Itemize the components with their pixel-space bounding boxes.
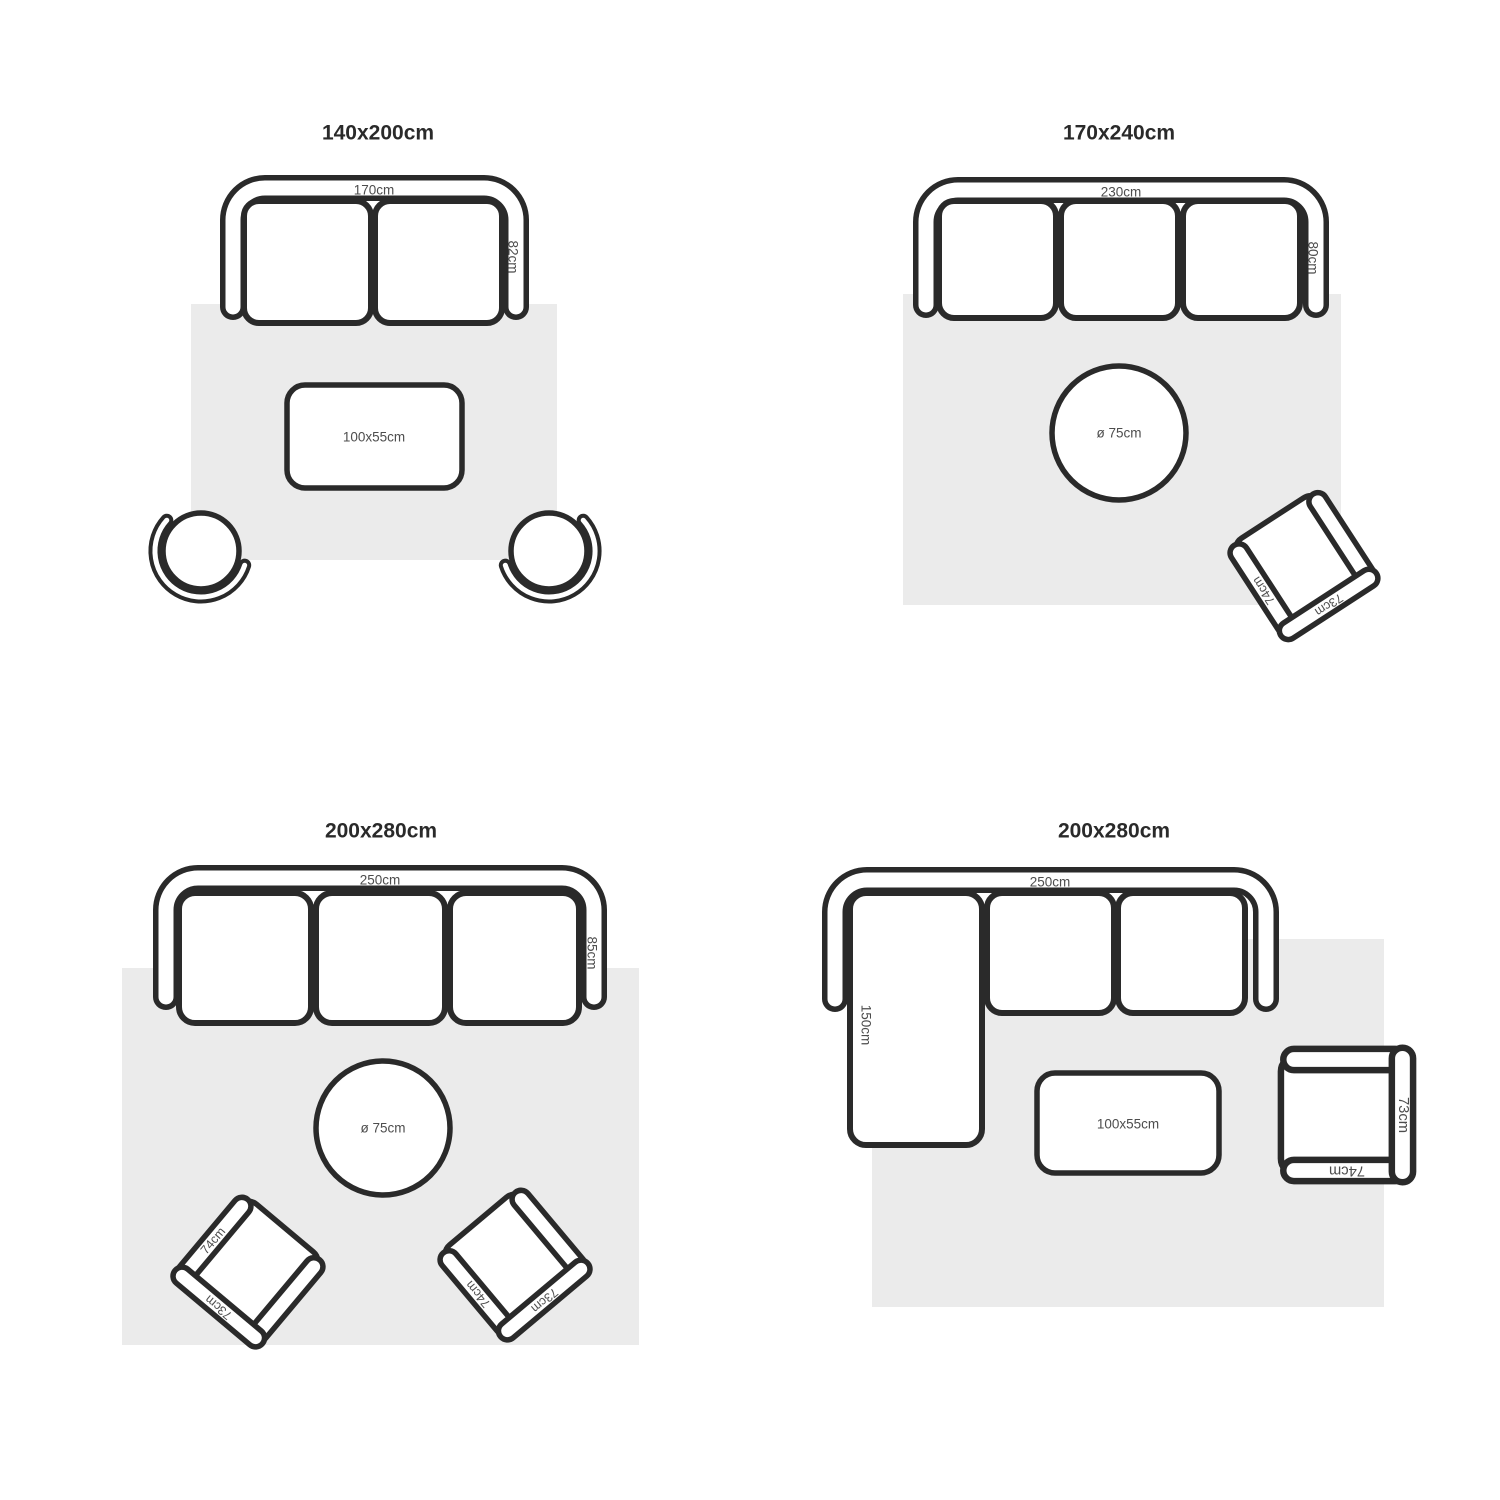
coffee-table: 100x55cm bbox=[1037, 1073, 1219, 1173]
sofa-cushion bbox=[1061, 201, 1178, 318]
tub-chair-right bbox=[505, 513, 595, 597]
sofa-cushion bbox=[987, 893, 1114, 1013]
sofa-cushion bbox=[316, 893, 445, 1023]
layout-140x200: 140x200cm 170cm 82cm 100x55cm bbox=[155, 122, 595, 598]
layout-140x200-title: 140x200cm bbox=[322, 122, 434, 145]
round-table: ø 75cm bbox=[1052, 366, 1186, 500]
sofa-depth-label: 85cm bbox=[585, 936, 600, 969]
sofa-chaise-length-label: 150cm bbox=[859, 1005, 874, 1046]
coffee-table: 100x55cm bbox=[287, 385, 462, 488]
coffee-table-label: 100x55cm bbox=[1097, 1117, 1159, 1132]
layout-200x280-b-title: 200x280cm bbox=[1058, 820, 1170, 843]
rug-size-guide-canvas: 140x200cm 170cm 82cm 100x55cm bbox=[0, 0, 1500, 1500]
sofa-cushion bbox=[1118, 893, 1245, 1013]
layout-200x280-b: 200x280cm 250cm 150cm 100x55cm 74cm 73cm bbox=[835, 820, 1413, 1308]
round-table-label: ø 75cm bbox=[1096, 426, 1141, 441]
sofa-cushion bbox=[179, 893, 311, 1023]
sofa-cushion bbox=[939, 201, 1056, 318]
sofa-width-label: 230cm bbox=[1101, 185, 1142, 200]
armchair-back-label: 73cm bbox=[1395, 1097, 1411, 1133]
sofa-depth-label: 82cm bbox=[506, 240, 521, 273]
sofa-three-seat: 230cm 80cm bbox=[926, 185, 1321, 319]
tub-chair-seat bbox=[163, 513, 239, 589]
rug-size-guide: 140x200cm 170cm 82cm 100x55cm bbox=[0, 0, 1500, 1500]
armchair-arm-label: 74cm bbox=[1329, 1162, 1365, 1178]
armchair: 74cm 73cm bbox=[1281, 1048, 1413, 1183]
tub-chair-left bbox=[155, 513, 245, 597]
sofa-cushion bbox=[450, 893, 579, 1023]
tub-chair-seat bbox=[511, 513, 587, 589]
layout-170x240: 170x240cm 230cm 80cm ø 75cm 74cm 73cm bbox=[903, 122, 1381, 644]
sofa-cushion bbox=[375, 201, 502, 323]
coffee-table-label: 100x55cm bbox=[343, 430, 405, 445]
sofa-width-label: 250cm bbox=[1030, 875, 1071, 890]
sofa-cushion bbox=[1183, 201, 1300, 318]
sofa-cushion bbox=[244, 201, 371, 323]
round-table-label: ø 75cm bbox=[360, 1121, 405, 1136]
sofa-width-label: 170cm bbox=[354, 183, 395, 198]
sofa-depth-label: 80cm bbox=[1306, 241, 1321, 274]
layout-200x280-a-title: 200x280cm bbox=[325, 820, 437, 843]
sofa-width-label: 250cm bbox=[360, 873, 401, 888]
layout-200x280-a: 200x280cm 250cm 85cm ø 75cm 74cm 73cm 74… bbox=[122, 820, 639, 1351]
round-table: ø 75cm bbox=[316, 1061, 450, 1195]
sofa-three-seat: 250cm 85cm bbox=[166, 873, 600, 1024]
layout-170x240-title: 170x240cm bbox=[1063, 122, 1175, 145]
sofa-two-seat: 170cm 82cm bbox=[233, 183, 521, 324]
